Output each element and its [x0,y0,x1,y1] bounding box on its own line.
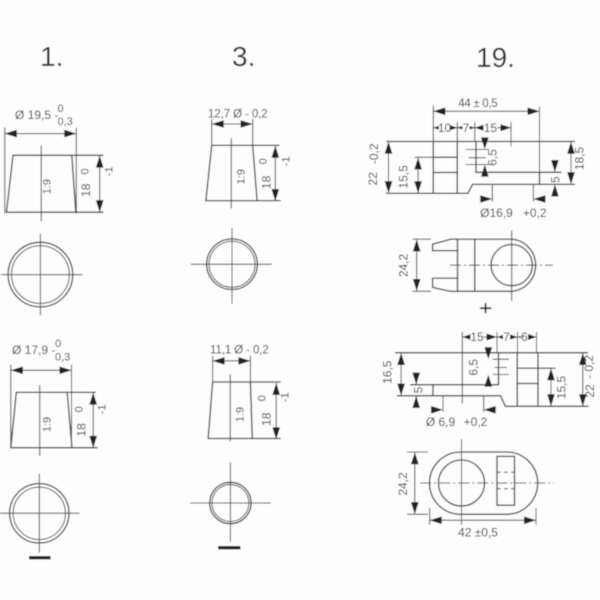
svg-text:19.: 19. [476,42,515,73]
svg-text:0: 0 [258,158,270,164]
svg-text:Ø 6,9: Ø 6,9 [426,415,456,429]
svg-text:15,5: 15,5 [555,375,569,399]
svg-text:- 0,2: - 0,2 [582,355,596,379]
svg-text:10: 10 [438,121,452,135]
svg-text:0: 0 [79,168,91,174]
svg-text:-1: -1 [97,404,109,414]
svg-text:-0,2: -0,2 [367,143,381,164]
svg-text:1:9: 1:9 [42,179,54,194]
svg-text:24,2: 24,2 [397,253,411,277]
svg-text:Ø 19,5 -: Ø 19,5 - [15,108,58,122]
svg-text:18: 18 [75,423,89,437]
svg-text:5: 5 [548,176,562,183]
svg-text:0: 0 [73,406,85,412]
svg-text:18: 18 [79,183,93,197]
svg-text:15: 15 [470,330,484,344]
svg-text:42 ±0,5: 42 ±0,5 [458,526,498,540]
svg-text:6,5: 6,5 [486,149,500,166]
svg-text:16,5: 16,5 [380,360,394,384]
svg-text:0,3: 0,3 [55,352,70,364]
svg-text:7: 7 [503,330,510,344]
svg-text:1.: 1. [40,41,63,72]
svg-text:-1: -1 [104,167,116,177]
svg-text:0,3: 0,3 [58,116,73,128]
svg-text:6: 6 [521,330,528,344]
svg-text:1:9: 1:9 [236,169,248,184]
svg-text:7: 7 [463,121,470,135]
svg-text:1:9: 1:9 [235,407,247,422]
svg-text:18: 18 [260,412,274,426]
svg-text:-1: -1 [280,392,292,402]
svg-text:-1: -1 [281,156,293,166]
svg-text:22: 22 [583,384,597,398]
svg-text:11,1 Ø - 0,2: 11,1 Ø - 0,2 [210,345,269,357]
svg-text:15,5: 15,5 [397,165,411,189]
svg-text:0: 0 [58,103,64,115]
svg-text:5: 5 [412,386,426,393]
svg-text:Ø 17,9 -: Ø 17,9 - [12,343,55,357]
svg-text:0: 0 [257,395,269,401]
svg-text:18: 18 [260,175,274,189]
svg-text:18,5: 18,5 [572,146,586,170]
svg-text:24,2: 24,2 [396,472,410,496]
svg-text:44 ± 0,5: 44 ± 0,5 [458,98,497,110]
svg-text:22: 22 [366,172,380,186]
svg-text:0: 0 [55,338,61,350]
svg-text:1:9: 1:9 [42,417,54,432]
svg-text:6,5: 6,5 [467,359,481,376]
svg-text:3.: 3. [232,41,255,72]
svg-text:15: 15 [484,121,498,135]
svg-text:Ø16,9: Ø16,9 [480,206,513,220]
svg-text:+0,2: +0,2 [464,415,488,429]
svg-text:12,7 Ø - 0,2: 12,7 Ø - 0,2 [208,109,268,121]
svg-text:+0,2: +0,2 [523,206,547,220]
